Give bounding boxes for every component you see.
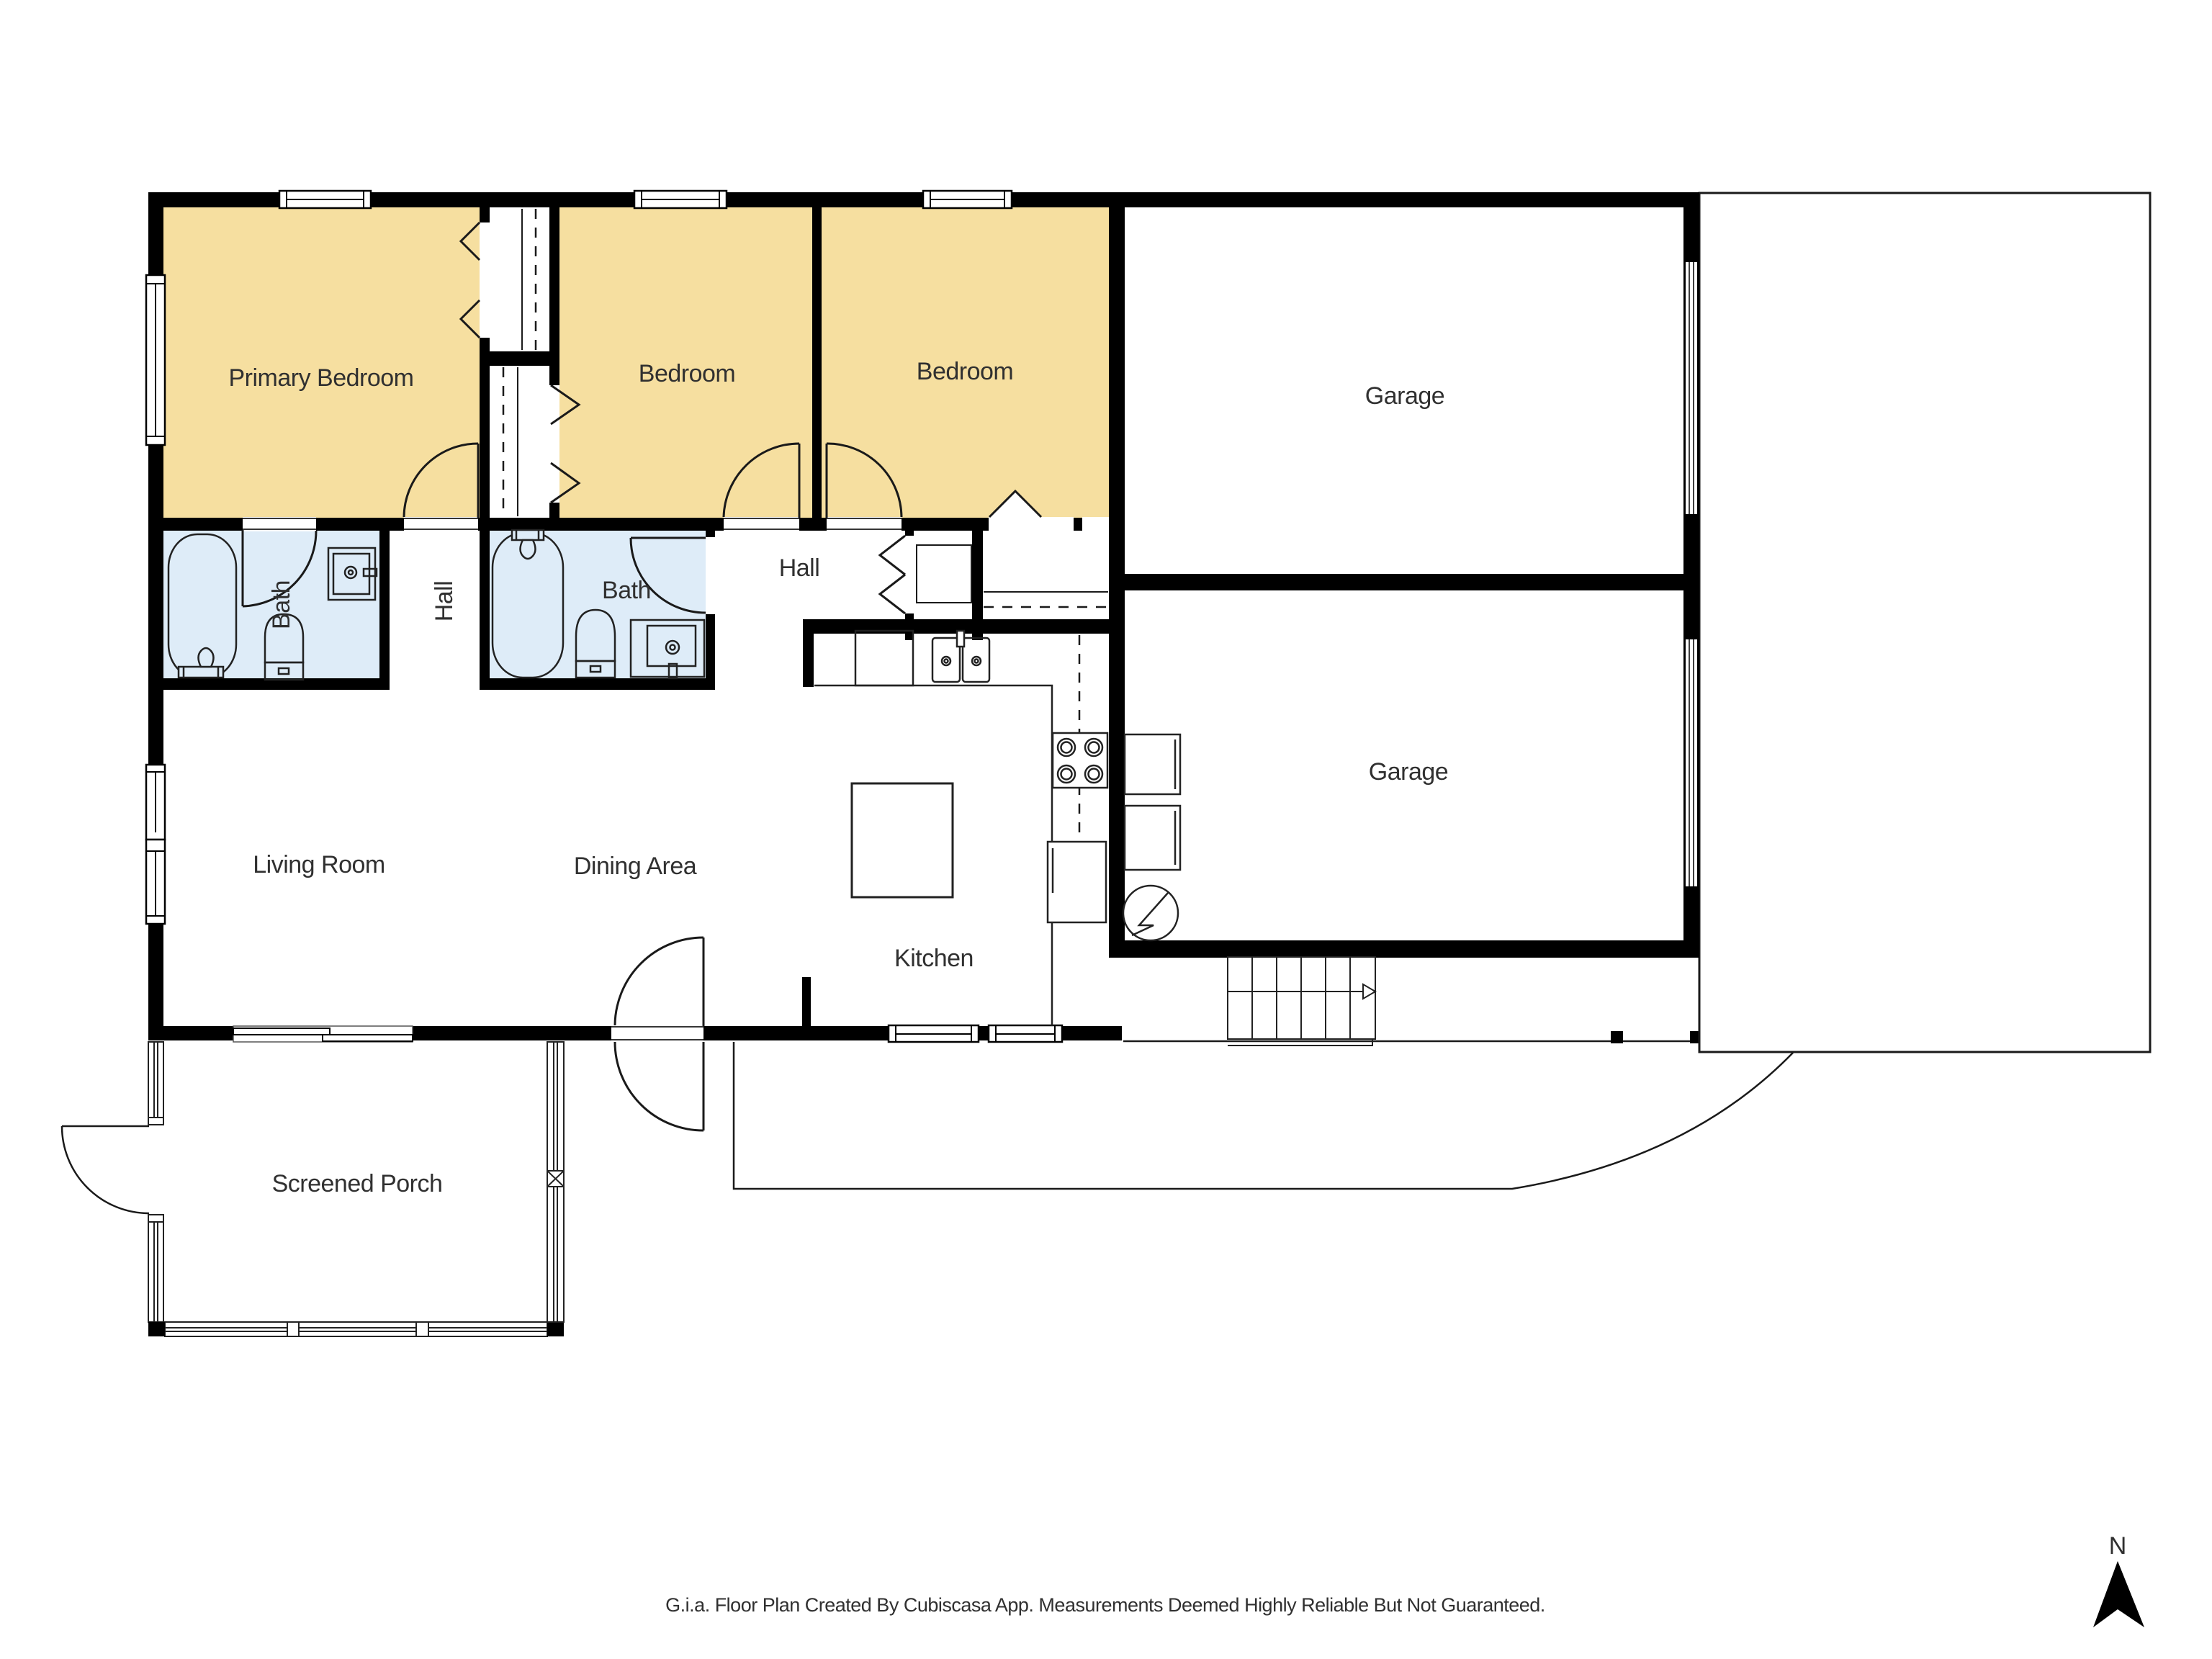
svg-text:Garage: Garage: [1369, 758, 1448, 786]
svg-text:Screened Porch: Screened Porch: [272, 1170, 443, 1197]
svg-text:Bedroom: Bedroom: [917, 358, 1013, 385]
svg-text:Dining Area: Dining Area: [574, 853, 697, 880]
svg-text:Hall: Hall: [779, 554, 820, 582]
svg-text:Garage: Garage: [1365, 382, 1444, 410]
svg-text:Kitchen: Kitchen: [894, 945, 974, 972]
svg-text:Bath: Bath: [268, 580, 295, 629]
svg-text:Bath: Bath: [602, 577, 651, 604]
svg-text:Hall: Hall: [431, 581, 458, 622]
svg-text:Bedroom: Bedroom: [639, 360, 735, 387]
svg-text:N: N: [2109, 1532, 2127, 1560]
svg-text:Living Room: Living Room: [253, 851, 385, 878]
svg-text:Primary Bedroom: Primary Bedroom: [228, 364, 413, 392]
svg-text:G.i.a. Floor Plan Created By C: G.i.a. Floor Plan Created By Cubiscasa A…: [665, 1594, 1545, 1616]
